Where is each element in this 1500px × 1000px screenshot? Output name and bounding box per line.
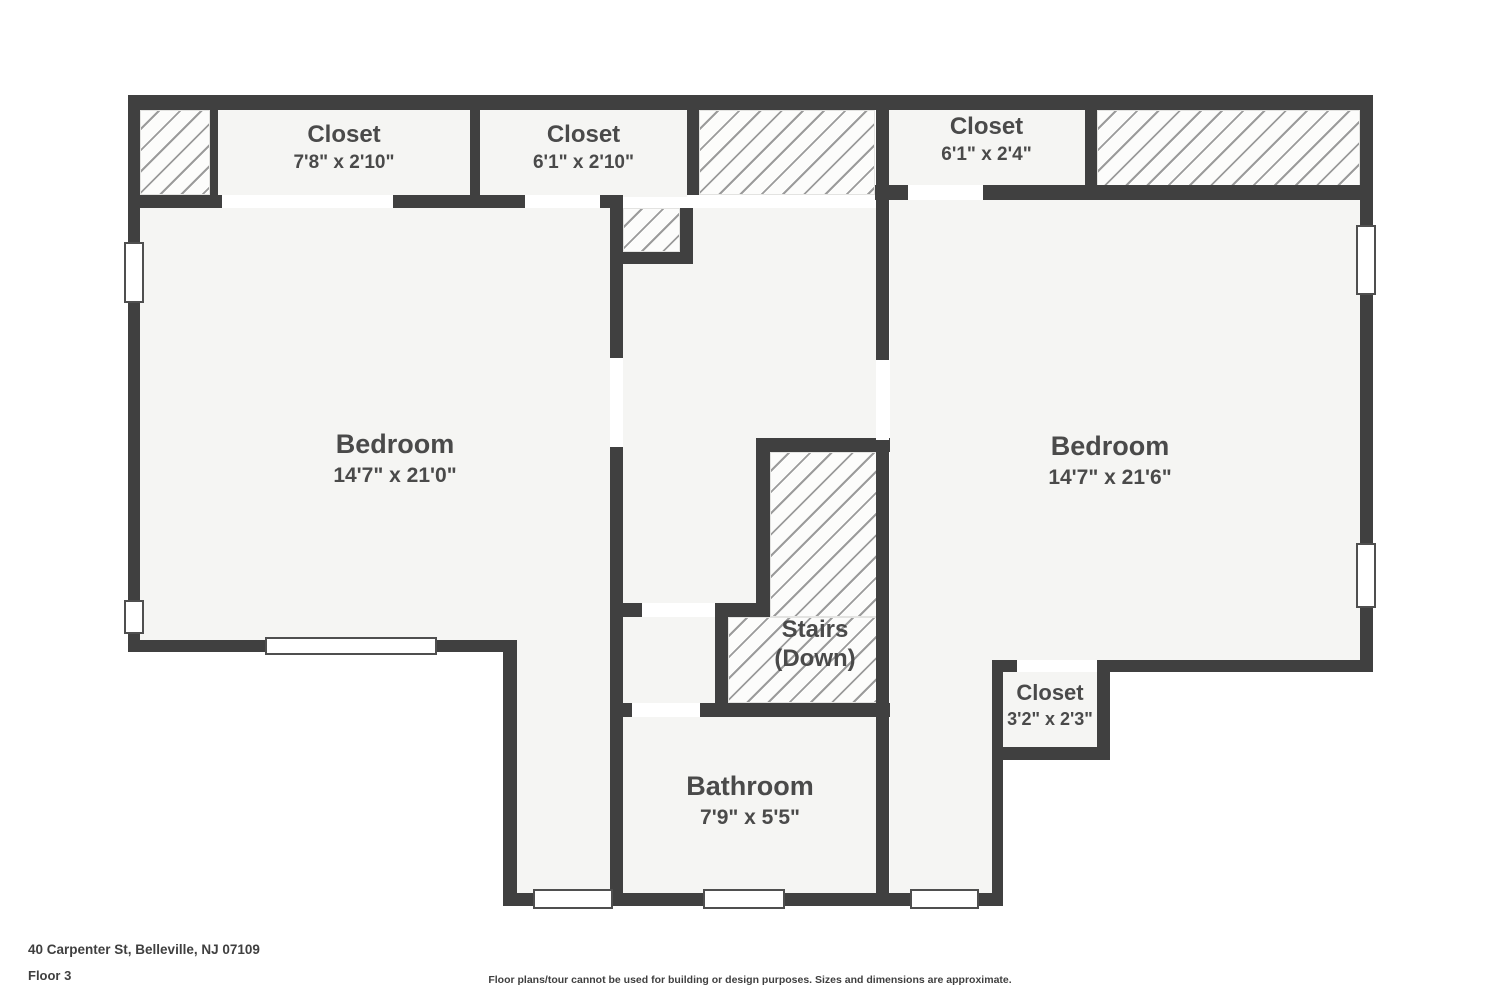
wall bbox=[756, 438, 770, 617]
stairs-hatch-upper bbox=[770, 452, 877, 617]
door-opening-landing bbox=[642, 603, 715, 617]
room-name: Closet bbox=[218, 120, 470, 149]
wall bbox=[610, 195, 623, 893]
door-opening-bathroom bbox=[632, 703, 700, 717]
wall bbox=[128, 95, 140, 652]
room-label-bedroom-right: Bedroom 14'7" x 21'6" bbox=[890, 430, 1330, 491]
window bbox=[1356, 543, 1376, 608]
window bbox=[703, 889, 785, 909]
address-text: 40 Carpenter St, Belleville, NJ 07109 bbox=[28, 942, 260, 957]
room-label-bedroom-left: Bedroom 14'7" x 21'0" bbox=[140, 428, 650, 489]
window bbox=[124, 242, 144, 303]
room-name: Stairs bbox=[740, 615, 890, 644]
window bbox=[1356, 225, 1376, 295]
window bbox=[265, 637, 437, 655]
room-label-closet-top-mid: Closet 6'1" x 2'10" bbox=[480, 120, 687, 174]
room-dims: 14'7" x 21'6" bbox=[890, 465, 1330, 491]
room-dims: 3'2" x 2'3" bbox=[1003, 709, 1097, 731]
room-label-closet-small: Closet 3'2" x 2'3" bbox=[1003, 680, 1097, 731]
window bbox=[124, 600, 144, 634]
room-floor-landing bbox=[623, 617, 715, 703]
wall bbox=[680, 208, 693, 264]
door-opening-closet-top-right bbox=[908, 185, 983, 200]
wall bbox=[470, 110, 480, 195]
hatched-area-top-right bbox=[1097, 110, 1360, 188]
room-name: Closet bbox=[888, 112, 1085, 141]
room-floor-bedroom-left-alcove bbox=[517, 638, 610, 893]
room-label-bathroom: Bathroom 7'9" x 5'5" bbox=[623, 770, 877, 831]
window bbox=[910, 889, 979, 909]
room-label-closet-top-right: Closet 6'1" x 2'4" bbox=[888, 112, 1085, 166]
wall bbox=[687, 110, 699, 195]
room-name: Bedroom bbox=[140, 428, 650, 461]
wall bbox=[715, 603, 728, 717]
room-dims: 6'1" x 2'10" bbox=[480, 151, 687, 174]
door-opening-bedroom-right bbox=[876, 360, 889, 440]
room-dims: 7'9" x 5'5" bbox=[623, 805, 877, 831]
wall bbox=[756, 438, 890, 452]
door-opening-closet-small bbox=[1017, 660, 1097, 672]
wall bbox=[128, 95, 1373, 110]
wall bbox=[1097, 660, 1110, 760]
room-dims: 6'1" x 2'4" bbox=[888, 143, 1085, 166]
room-label-stairs: Stairs (Down) bbox=[740, 615, 890, 674]
room-label-closet-top-left: Closet 7'8" x 2'10" bbox=[218, 120, 470, 174]
window bbox=[533, 889, 613, 909]
room-floor-bedroom-right-corridor bbox=[890, 660, 992, 893]
room-name: Closet bbox=[480, 120, 687, 149]
wall bbox=[503, 640, 517, 905]
room-dims: (Down) bbox=[740, 644, 890, 673]
room-dims: 7'8" x 2'10" bbox=[218, 151, 470, 174]
wall bbox=[992, 747, 1110, 760]
room-name: Closet bbox=[1003, 680, 1097, 707]
wall bbox=[210, 110, 218, 195]
room-floor-bedroom-left bbox=[140, 208, 610, 640]
wall bbox=[876, 110, 889, 893]
door-opening-closet-top-left bbox=[222, 195, 393, 208]
hatched-area-top-left bbox=[140, 110, 210, 195]
wall bbox=[992, 660, 1003, 903]
room-name: Bedroom bbox=[890, 430, 1330, 463]
floor-plan: Closet 7'8" x 2'10" Closet 6'1" x 2'10" … bbox=[0, 0, 1500, 1000]
room-name: Bathroom bbox=[623, 770, 877, 803]
chimney-hatch bbox=[623, 208, 680, 252]
disclaimer-text: Floor plans/tour cannot be used for buil… bbox=[0, 974, 1500, 986]
hatched-area-top-middle bbox=[699, 110, 875, 195]
door-opening-closet-top-mid bbox=[525, 195, 600, 208]
room-dims: 14'7" x 21'0" bbox=[140, 463, 650, 489]
wall bbox=[1085, 108, 1097, 185]
